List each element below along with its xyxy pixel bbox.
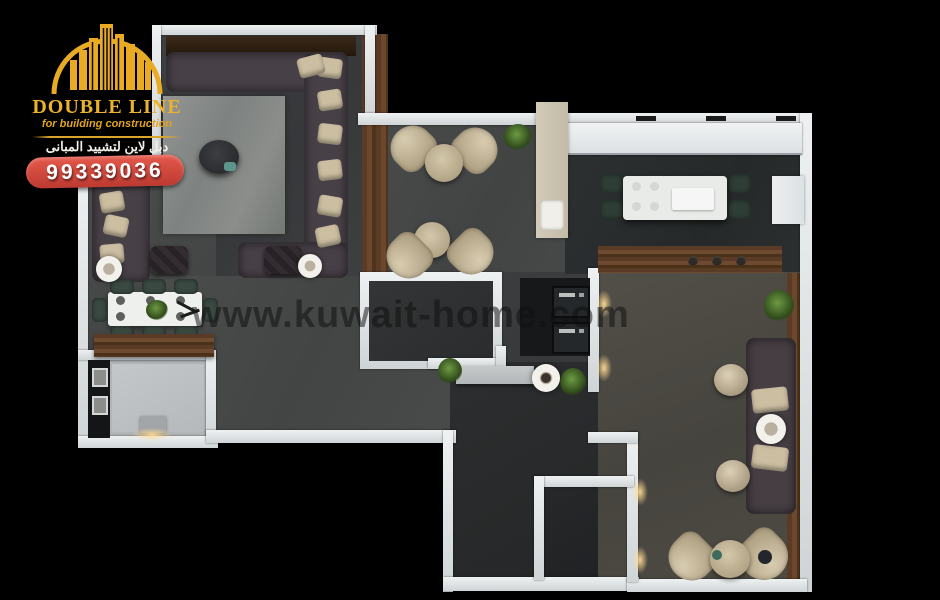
kitchen-chair	[729, 200, 751, 219]
foyer-left-wall	[443, 430, 453, 592]
closet-unit	[772, 176, 804, 224]
table-centerpiece-plant	[146, 300, 168, 320]
floor-pouf	[716, 460, 750, 492]
sofa-pillow	[317, 88, 344, 112]
floor-pouf	[714, 364, 748, 396]
sofa-pillow	[317, 159, 343, 182]
kitchen-chair	[600, 200, 622, 219]
sofa-pillow	[98, 190, 125, 214]
accent-table-center	[541, 373, 551, 383]
round-side-table	[425, 144, 463, 182]
doorway-light	[132, 428, 172, 441]
brand-name: DOUBLE LINE	[22, 96, 192, 119]
dark-bowl	[758, 550, 772, 564]
gold-divider	[32, 136, 182, 138]
kitchen-sink	[540, 200, 564, 230]
left-outer-wall	[78, 168, 88, 448]
living-right-upper-wall	[365, 25, 375, 120]
bar-stool	[688, 256, 698, 266]
island-tray	[672, 188, 714, 210]
place-setting	[650, 202, 659, 211]
bar-stool	[712, 256, 722, 266]
sofa-pillow	[316, 194, 343, 218]
sofa-pillow	[751, 386, 789, 414]
sofa-pillow	[751, 444, 790, 472]
window-dash-1	[636, 116, 656, 121]
window-dash-3	[776, 116, 796, 121]
potted-plant	[504, 124, 532, 150]
hall-bottom-wall	[206, 430, 456, 443]
company-logo: DOUBLE LINE for building construction دب…	[22, 6, 192, 186]
dining-chair	[142, 279, 166, 294]
sectional-sofa-right	[304, 52, 348, 252]
wall-light	[632, 478, 648, 506]
place-setting	[632, 182, 641, 191]
wall-frame	[92, 368, 108, 387]
place-setting	[632, 202, 641, 211]
round-floor-lamp	[96, 256, 122, 282]
brand-arabic-name: دبل لاين لتشييد المبانى	[22, 139, 192, 155]
brand-tagline: for building construction	[22, 118, 192, 130]
room-b-top-wall	[534, 476, 634, 487]
hall-bench	[456, 366, 534, 384]
plate	[116, 296, 125, 305]
dining-chair	[92, 298, 107, 322]
corridor-step-wall	[588, 432, 638, 443]
wall-frame	[92, 396, 108, 415]
small-plant-pot	[712, 550, 722, 560]
dining-chair	[110, 279, 134, 294]
watermark-text: www.kuwait-home.com	[192, 294, 702, 337]
kitchen-chair	[729, 174, 751, 193]
wall-light	[632, 546, 648, 574]
plate	[116, 312, 125, 321]
coffee-table-accent	[224, 162, 236, 171]
round-serving-tray	[756, 414, 786, 444]
round-floor-lamp	[298, 254, 322, 278]
potted-plant	[438, 358, 462, 384]
potted-plant	[764, 290, 794, 322]
phone-number: 99339036	[46, 158, 164, 184]
bar-stool	[736, 256, 746, 266]
sofa-pillow	[317, 123, 343, 146]
kitchen-terrace-band	[565, 123, 802, 155]
wall-light	[596, 354, 612, 382]
building-skyline-icon	[40, 8, 174, 100]
floor-plan-render: www.kuwait-home.com DOUBLE	[0, 0, 940, 600]
place-setting	[650, 182, 659, 191]
window-dash-2	[706, 116, 726, 121]
phone-badge: 99339036	[26, 154, 185, 188]
majlis-bottom-wall	[627, 579, 807, 592]
sideboard-cabinet	[94, 334, 214, 357]
dining-chair	[174, 279, 198, 294]
bench-stub-wall	[496, 346, 506, 368]
potted-plant	[560, 368, 586, 396]
room-b-left-wall	[534, 476, 544, 580]
kitchen-chair	[600, 174, 622, 193]
dark-pouf	[150, 246, 188, 274]
dark-pouf	[264, 246, 302, 274]
